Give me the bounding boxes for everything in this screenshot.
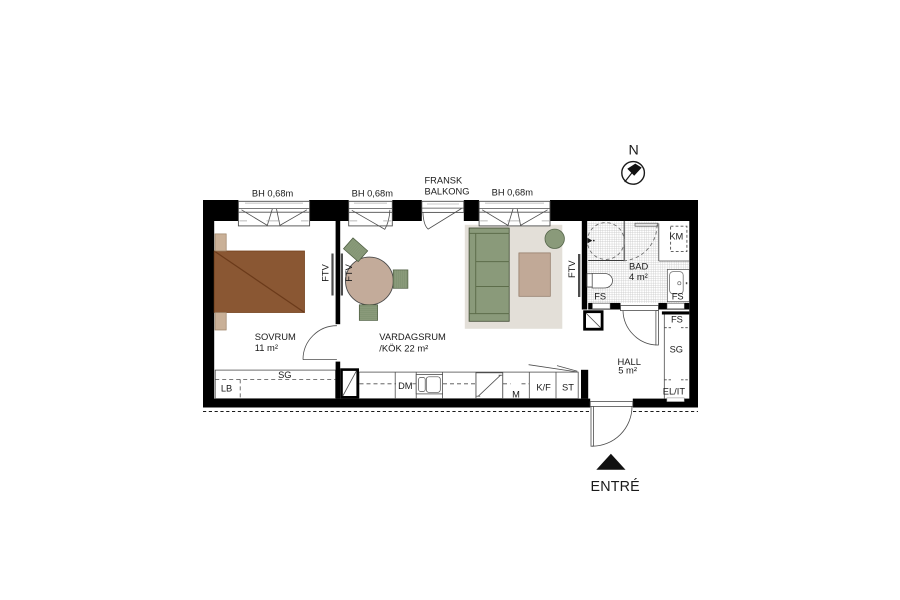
- svg-text:FS: FS: [672, 292, 684, 302]
- svg-text:ST: ST: [562, 382, 574, 392]
- svg-text:SOVRUM: SOVRUM: [255, 331, 296, 342]
- svg-text:DM: DM: [398, 381, 412, 391]
- svg-text:K/F: K/F: [536, 382, 551, 392]
- svg-text:VARDAGSRUM: VARDAGSRUM: [379, 331, 446, 342]
- svg-text:BH 0,68m: BH 0,68m: [252, 188, 294, 198]
- svg-text:FS: FS: [594, 292, 606, 302]
- svg-text:/KÖK 22 m²: /KÖK 22 m²: [379, 343, 428, 354]
- svg-text:BAD: BAD: [629, 261, 649, 272]
- svg-text:ENTRÉ: ENTRÉ: [590, 478, 639, 495]
- svg-text:BH 0,68m: BH 0,68m: [492, 188, 534, 198]
- svg-text:BH 0,68m: BH 0,68m: [352, 188, 394, 198]
- svg-text:FTV: FTV: [567, 260, 577, 278]
- svg-text:FTV: FTV: [344, 263, 354, 281]
- svg-text:EL/IT: EL/IT: [663, 387, 686, 397]
- svg-text:BALKONG: BALKONG: [425, 187, 470, 197]
- svg-text:M: M: [512, 389, 520, 399]
- svg-text:FS: FS: [671, 315, 683, 325]
- svg-text:11 m²: 11 m²: [255, 342, 278, 353]
- svg-text:FRANSK: FRANSK: [425, 175, 464, 185]
- svg-text:KM: KM: [669, 232, 683, 242]
- svg-text:FTV: FTV: [321, 263, 331, 281]
- svg-text:N: N: [628, 143, 638, 159]
- svg-text:LB: LB: [221, 383, 232, 393]
- svg-text:SG: SG: [670, 345, 683, 355]
- svg-text:SG: SG: [278, 370, 291, 380]
- svg-text:4 m²: 4 m²: [629, 271, 648, 282]
- svg-text:5 m²: 5 m²: [618, 365, 637, 376]
